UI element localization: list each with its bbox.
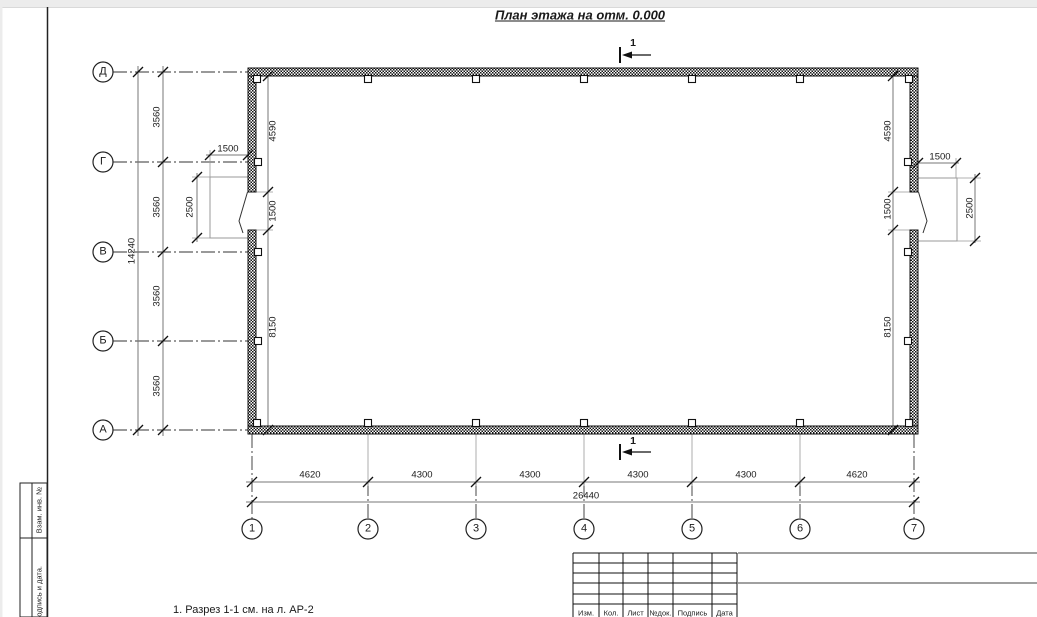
stamp-col-podpis: Подпись [678,609,708,617]
dim-right-wall-lower: 8150 [883,316,893,337]
axis-label-b: Б [99,336,106,347]
dimension-lines [138,66,975,502]
dim-row-g-v: 3560 [152,196,162,217]
stamp-col-list: Лист [627,609,643,617]
stamp-col-kol: Кол. [604,609,619,617]
dim-left-wall-lower: 8150 [268,316,278,337]
dim-row-b-a: 3560 [152,375,162,396]
axis-label-5: 5 [689,524,695,535]
axis-circles [93,62,924,539]
dim-right-wall-upper: 4590 [883,120,893,141]
dim-left-wall-upper: 4590 [268,120,278,141]
dim-right-wall-opening: 1500 [883,198,893,219]
dim-bay-5-6: 4300 [735,470,756,480]
stamp-rules [738,553,1037,583]
axis-label-v: В [99,247,106,258]
axis-label-2: 2 [365,524,371,535]
viewport-chrome [0,0,1037,617]
dim-total-height: 14240 [127,238,137,264]
dim-bay-3-4: 4300 [519,470,540,480]
dim-left-door-width: 1500 [217,144,238,154]
dim-bay-4-5: 4300 [627,470,648,480]
wall-columns [254,76,913,427]
stamp-col-izm: Изм. [578,609,594,617]
axis-label-g: Г [100,157,106,168]
axis-label-3: 3 [473,524,479,535]
extension-lines [192,150,981,486]
dim-bay-1-2: 4620 [299,470,320,480]
section-mark-top-label: 1 [630,38,636,49]
axis-grid-lines [113,72,914,519]
axis-label-7: 7 [911,524,917,535]
floor-plan-canvas [0,0,1037,617]
dim-right-door-width: 1500 [929,152,950,162]
axis-label-4: 4 [581,524,587,535]
axis-label-1: 1 [249,524,255,535]
dim-bay-6-7: 4620 [846,470,867,480]
door-swing-outlines [210,177,957,241]
stamp-col-nodoc: №док. [650,609,672,617]
section-marks [620,47,651,460]
margin-label-podpis-data: Подпись и дата. [35,566,43,617]
section-mark-bottom-label: 1 [630,436,636,447]
margin-label-vzam-inv: Взам. инв. № [35,487,43,533]
stamp-col-data: Дата [716,609,733,617]
drawing-sheet: План этажа на отм. 0.000 Д Г В Б А 1 2 3… [0,0,1037,617]
drawing-note: 1. Разрез 1-1 см. на л. АР-2 [173,604,314,616]
axis-label-6: 6 [797,524,803,535]
dim-left-wall-opening: 1500 [268,200,278,221]
dimension-ticks [133,67,980,507]
dim-left-door-depth: 2500 [185,196,195,217]
dim-right-door-depth: 2500 [965,197,975,218]
dim-row-v-b: 3560 [152,285,162,306]
dim-row-d-g: 3560 [152,106,162,127]
axis-label-a: А [99,425,106,436]
axis-label-d: Д [99,67,106,78]
drawing-title: План этажа на отм. 0.000 [495,9,665,22]
dim-bay-2-3: 4300 [411,470,432,480]
building-walls [248,68,918,434]
door-leaves [239,192,927,233]
dim-total-width: 26440 [573,491,599,501]
